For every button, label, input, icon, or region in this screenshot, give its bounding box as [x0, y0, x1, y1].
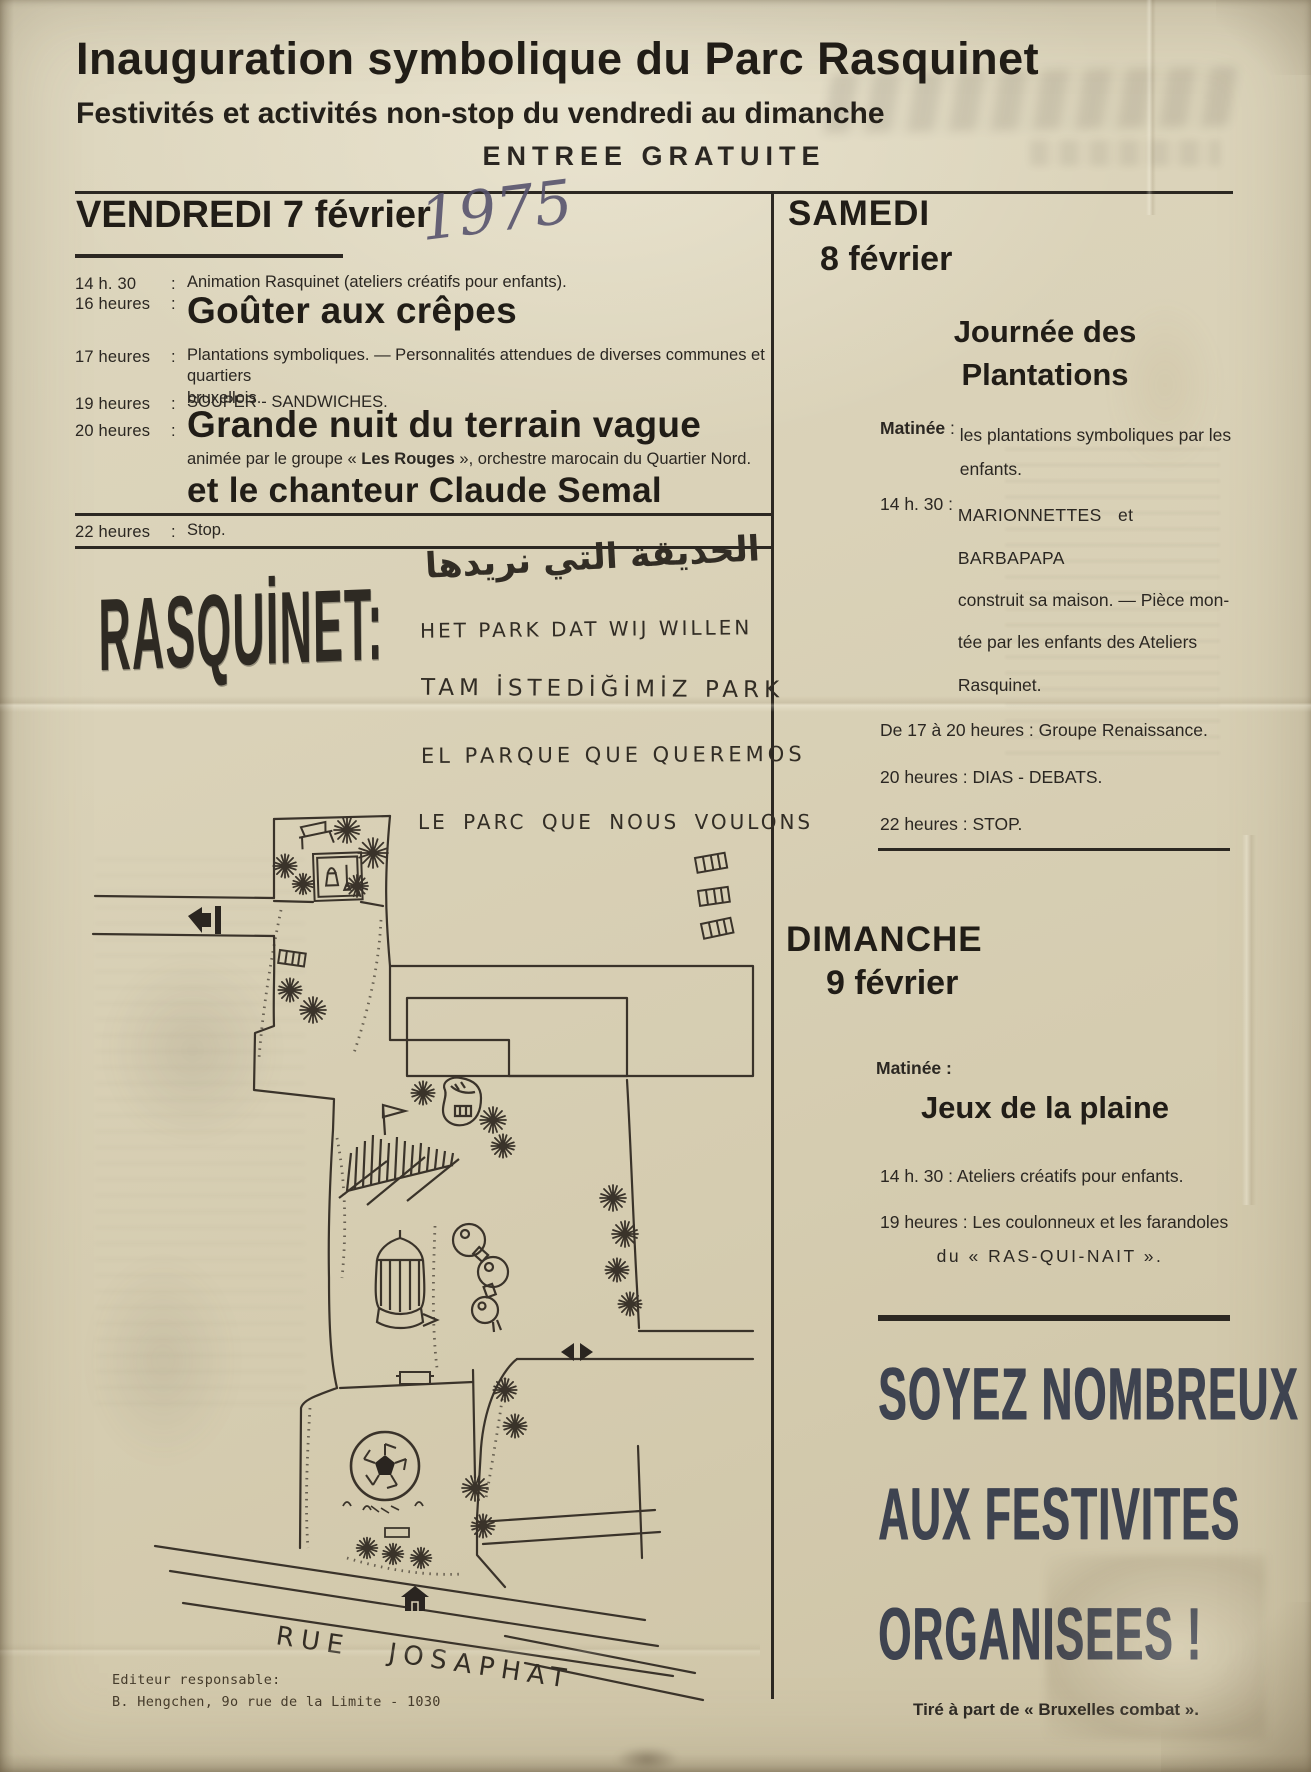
separator: : [943, 494, 958, 515]
football-icon [351, 1432, 419, 1513]
poster-page: Inauguration symbolique du Parc Rasquine… [0, 0, 1311, 1772]
saturday-schedule: Matinée : les plantations symboliques pa… [880, 418, 1234, 835]
page-subtitle: Festivités et activités non-stop du vend… [76, 97, 885, 131]
banner-line: SOYEZ NOMBREUX [878, 1350, 1198, 1437]
vertical-fold-crease [1242, 835, 1256, 1205]
schedule-row-continuation: du « RAS-QUI-NAIT ». [900, 1246, 1200, 1267]
separator: : [1024, 720, 1039, 741]
vertical-fold-crease [1146, 0, 1156, 215]
field-marks [343, 1502, 423, 1537]
event-headline: Goûter aux crêpes [187, 290, 517, 331]
schedule-row: 20 heures : DIAS - DEBATS. [880, 767, 1234, 788]
publisher-line: B. Hengchen, 9o rue de la Limite - 1030 [112, 1694, 441, 1710]
time-label: Matinée [880, 418, 945, 439]
time-label: 20 heures [75, 412, 171, 441]
publisher-line: Editeur responsable: [112, 1672, 281, 1688]
event-line: Plantations symboliques. — Personnalités… [187, 345, 775, 388]
building-a [390, 966, 753, 1076]
time-label: 17 heures [75, 345, 171, 367]
entrance-arrow-icon [188, 906, 221, 934]
separator: : [171, 345, 187, 367]
trees [273, 817, 641, 1568]
event-line: Rasquinet. [958, 664, 1234, 706]
street-name-label: RUE JOSAPHAT [274, 1621, 575, 1695]
separator: : [171, 520, 187, 542]
time-label: 14 h. 30 [75, 272, 171, 294]
banner-line: AUX FESTIVITES [878, 1470, 1198, 1557]
saturday-title-line: Plantations [870, 353, 1220, 396]
separator: : [958, 814, 973, 835]
sunday-title: Jeux de la plaine [870, 1090, 1220, 1126]
event-text: Grande nuit du terrain vague animée par … [187, 412, 775, 510]
banner-line: ORGANISEES ! [878, 1590, 1198, 1677]
friday-rule-top [75, 513, 771, 516]
rasquinet-logo: RASQUİNET: [98, 567, 384, 695]
event-line: Groupe Renaissance. [1039, 720, 1234, 741]
time-label: 14 h. 30 [880, 494, 943, 515]
event-subline: animée par le groupe « Les Rouges », orc… [187, 449, 775, 470]
edge-shading [0, 1754, 1311, 1772]
schedule-row: 20 heures : Grande nuit du terrain vague… [75, 412, 775, 510]
sculpture-blobs-icon [453, 1224, 508, 1332]
subline-bold: Les Rouges [361, 450, 455, 468]
house-icon [401, 1586, 429, 1611]
schedule-row: 14 h. 30 : Ateliers créatifs pour enfant… [880, 1166, 1184, 1187]
event-headline: et le chanteur Claude Semal [187, 473, 775, 510]
free-entry-line: ENTREE GRATUITE [75, 141, 1233, 172]
time-label: 22 heures [75, 520, 171, 542]
event-line: construit sa maison. — Pièce mon- [958, 579, 1234, 621]
aviary-gazebo-icon [376, 1230, 437, 1328]
slogan-dutch: HET PARK DAT WIJ WILLEN [420, 615, 753, 642]
event-headline: Grande nuit du terrain vague [187, 406, 775, 444]
bench-icon [297, 821, 335, 850]
sunday-rule [878, 848, 1230, 851]
schedule-row: 14 h. 30 : MARIONNETTES et BARBAPAPA con… [880, 494, 1234, 706]
event-line: tée par les enfants des Ateliers [958, 621, 1234, 663]
banner-rule [878, 1315, 1230, 1321]
event-line: enfants. [960, 452, 1234, 486]
torn-edge-notch [615, 1746, 679, 1772]
saturday-heading: SAMEDI [788, 194, 930, 234]
subline-text: », orchestre marocain du Quartier Nord. [455, 450, 751, 468]
time-label: 22 heures [880, 814, 958, 835]
event-line: MARIONNETTES et BARBAPAPA [958, 494, 1234, 579]
saturday-title-line: Journée des [870, 310, 1220, 353]
separator: : [958, 767, 973, 788]
reprint-note: Tiré à part de « Bruxelles combat ». [878, 1700, 1234, 1720]
sunday-date: 9 février [826, 964, 958, 1003]
edge-shading [0, 0, 14, 1772]
schedule-row: 22 heures : STOP. [880, 814, 1234, 835]
time-label: 19 heures [75, 392, 171, 414]
sunday-heading: DIMANCHE [786, 920, 983, 960]
event-line: les plantations symboliques par les [960, 418, 1234, 452]
event-line: DIAS - DEBATS. [972, 767, 1234, 788]
bench-icon [396, 1372, 434, 1384]
page-title: Inauguration symbolique du Parc Rasquine… [76, 33, 1039, 85]
event-line: STOP. [972, 814, 1234, 835]
flag-fence-icon [339, 1105, 459, 1205]
subline-text: animée par le groupe « [187, 450, 361, 468]
separator: : [171, 412, 187, 441]
schedule-row: Matinée : les plantations symboliques pa… [880, 418, 1234, 486]
time-label: 16 heures [75, 292, 171, 314]
building-b [407, 998, 627, 1076]
schedule-row: 19 heures : Les coulonneux et les farand… [880, 1212, 1228, 1233]
separator: : [171, 292, 187, 314]
corner-shading [1216, 0, 1311, 75]
separator: : [171, 272, 187, 294]
time-label: De 17 à 20 heures [880, 720, 1024, 741]
saturday-date: 8 février [820, 240, 952, 279]
separator: : [945, 418, 960, 439]
schedule-row: De 17 à 20 heures : Groupe Renaissance. [880, 720, 1234, 741]
slogan-turkish: TAM İSTEDİĞİMİZ PARK [421, 675, 784, 704]
shoe-sculpture-icon [443, 1078, 481, 1126]
friday-heading-rule [75, 254, 343, 258]
saturday-title: Journée des Plantations [870, 310, 1220, 397]
time-label: 20 heures [880, 767, 958, 788]
separator: : [171, 392, 187, 414]
friday-heading: VENDREDI 7 février [76, 194, 431, 237]
schedule-row: 16 heures : Goûter aux crêpes [75, 292, 775, 330]
sunday-matinee-label: Matinée : [876, 1058, 952, 1079]
handwritten-year: 1975 [416, 167, 576, 255]
park-map-drawing: RUE JOSAPHAT [85, 758, 765, 1708]
